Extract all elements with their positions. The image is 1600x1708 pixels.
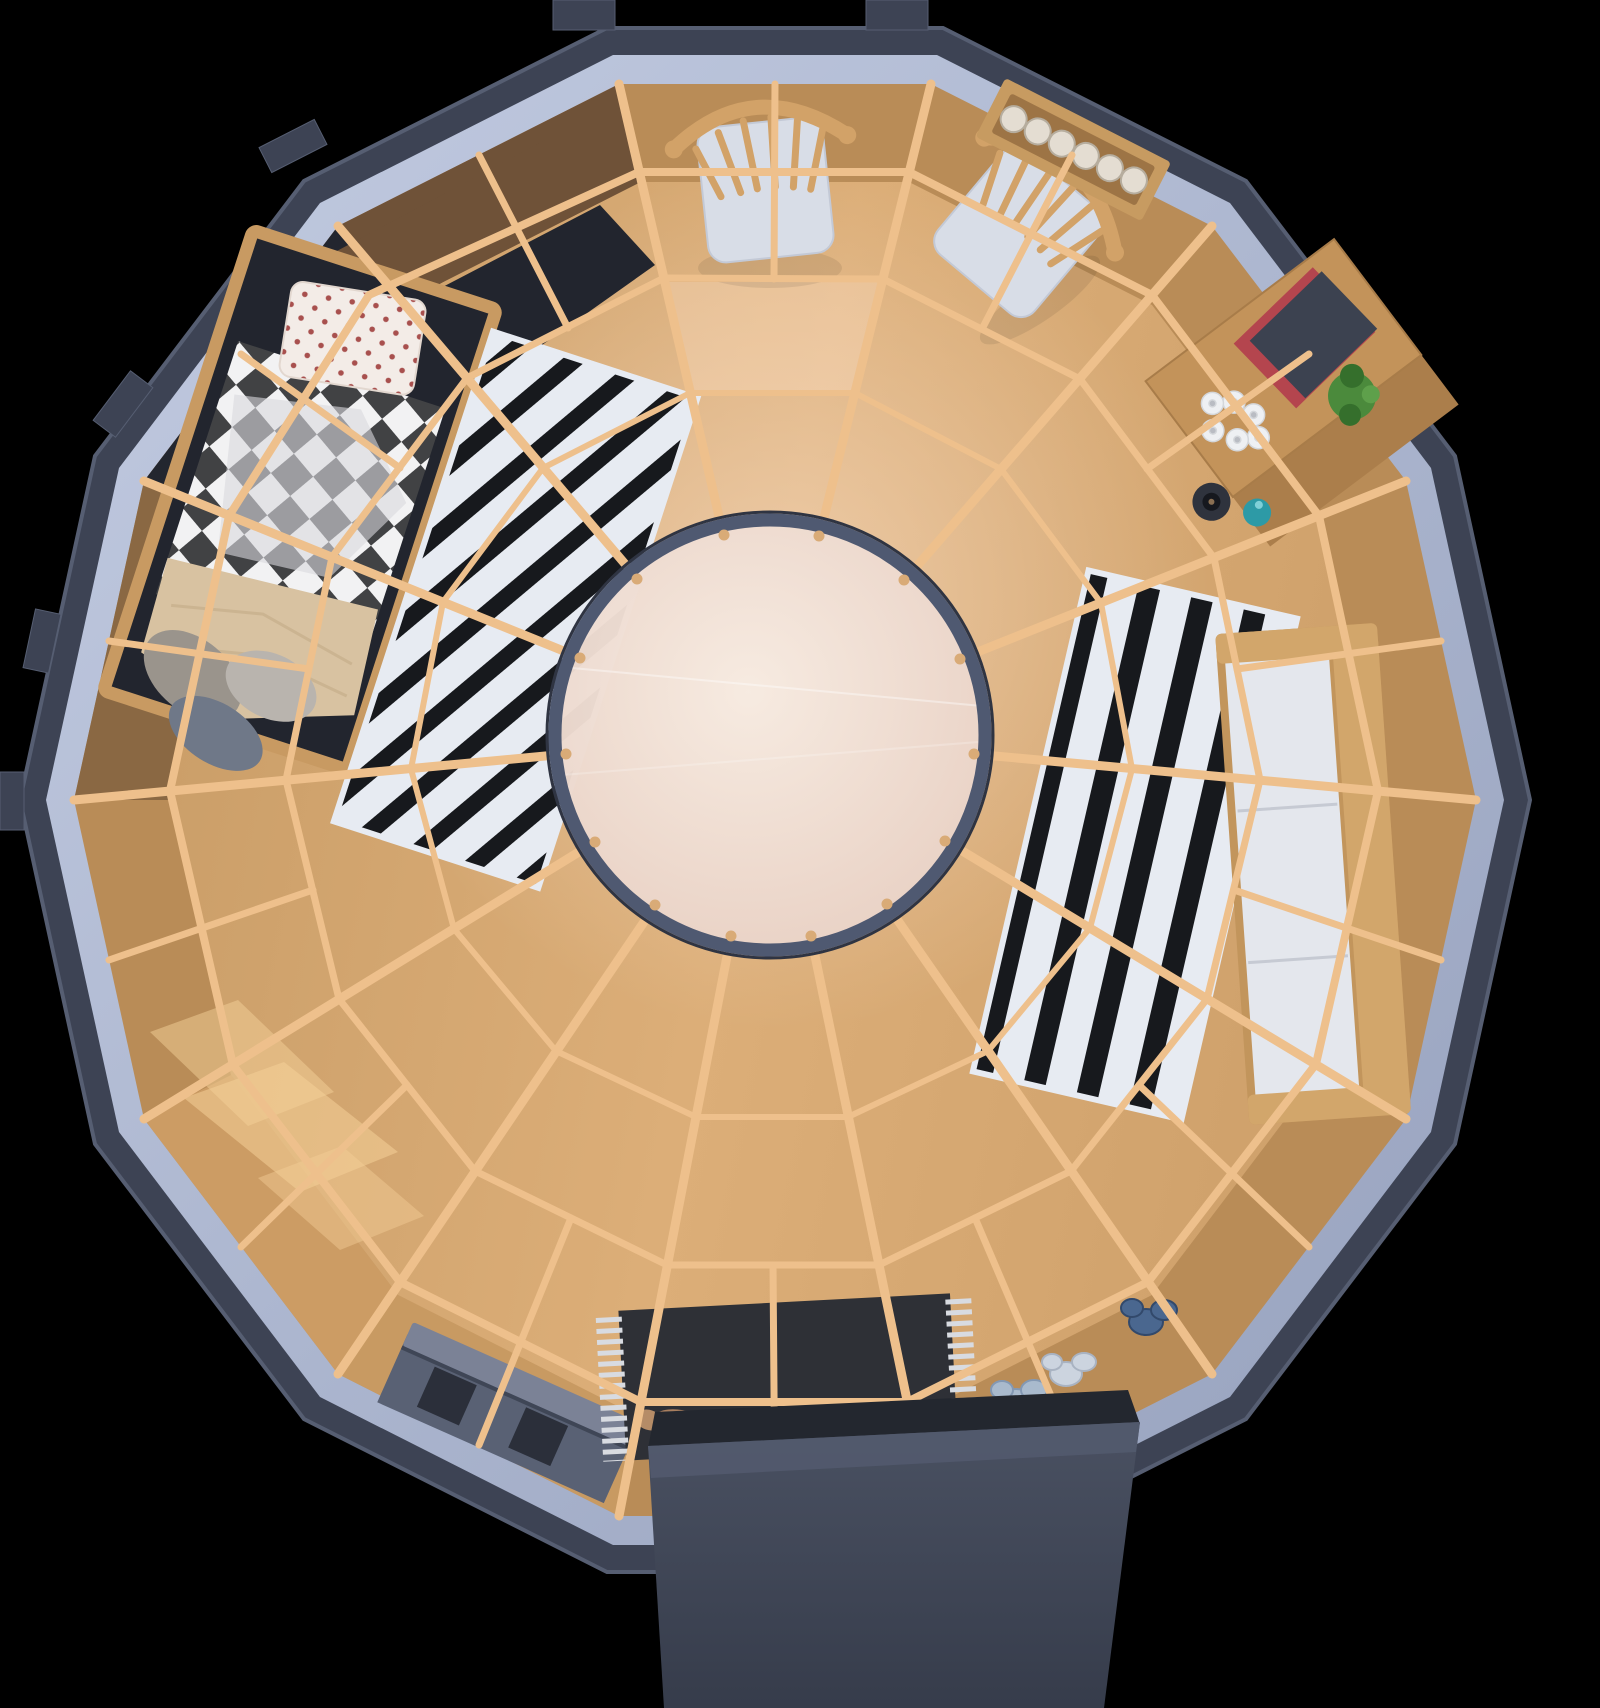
peg (575, 653, 586, 664)
peg (882, 899, 893, 910)
shell-tab (0, 772, 24, 830)
peg (719, 530, 730, 541)
peg (726, 931, 737, 942)
entrance-porch (648, 1390, 1140, 1708)
shoe (1121, 1299, 1143, 1317)
peg (561, 749, 572, 760)
dotted-pillow (278, 280, 427, 396)
peg (650, 900, 661, 911)
peg (632, 574, 643, 585)
peg (590, 837, 601, 848)
skylight-dome (547, 512, 993, 958)
shell-tab (553, 0, 615, 30)
render-stage (0, 0, 1600, 1708)
peg (955, 654, 966, 665)
peg (814, 531, 825, 542)
peg (806, 931, 817, 942)
peg (899, 575, 910, 586)
shoe (1042, 1354, 1062, 1370)
shoe (1072, 1353, 1096, 1371)
shell-tab (866, 0, 928, 30)
peg (940, 836, 951, 847)
peg (969, 749, 980, 760)
cabin-topview-svg (0, 0, 1600, 1708)
